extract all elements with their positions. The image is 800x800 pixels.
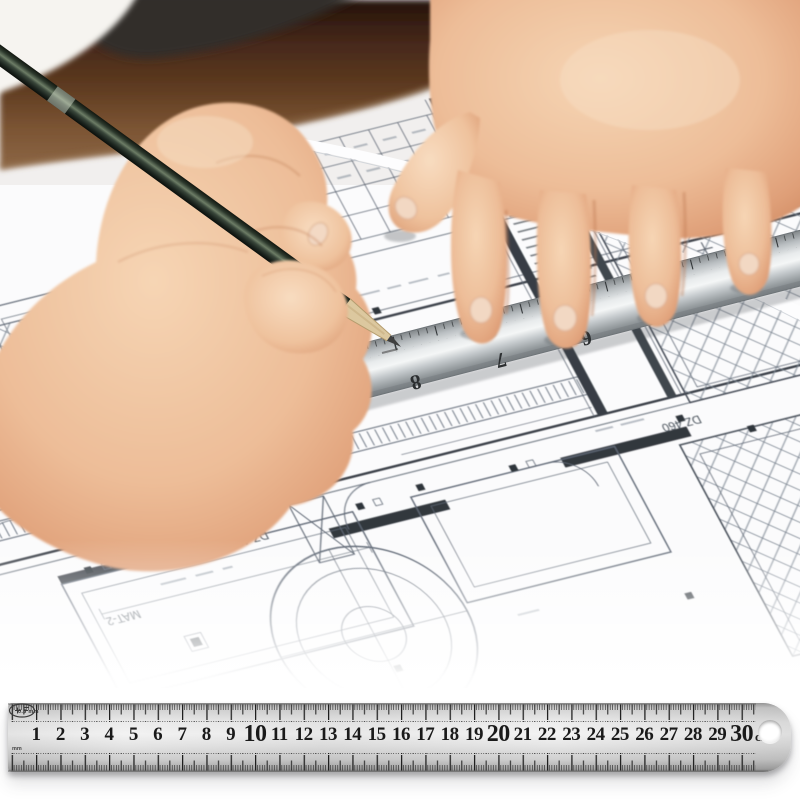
ruler-number: 30 bbox=[730, 721, 753, 748]
ruler-number: 3 bbox=[80, 724, 89, 746]
fingernail bbox=[470, 297, 492, 323]
steel-ruler-product: 1234567891011121314151617181920212223242… bbox=[8, 703, 791, 772]
ruler-number: 18 bbox=[441, 724, 459, 746]
ruler-number: 8 bbox=[202, 724, 211, 746]
ruler-number: 15 bbox=[368, 724, 386, 746]
ruler-mm-label: mm bbox=[12, 746, 22, 752]
ruler-number: 28 bbox=[684, 724, 702, 746]
ruler-number: 10 bbox=[243, 721, 266, 748]
ruler-number: 26 bbox=[635, 724, 653, 746]
ruler-number: 14 bbox=[343, 724, 361, 746]
scene-photo: MAT-2 1290 DZ 480 TF-06 DZ 460 bbox=[0, 0, 800, 700]
ruler-number: 4 bbox=[104, 724, 113, 746]
ruler-number: 19 bbox=[465, 724, 483, 746]
ruler-number: 25 bbox=[611, 724, 629, 746]
ruler-number: 5 bbox=[129, 724, 138, 746]
ruler-number: 1 bbox=[32, 724, 41, 746]
cert-mark-icon bbox=[8, 703, 36, 718]
ruler-number: 12 bbox=[295, 724, 313, 746]
ruler-number: 23 bbox=[562, 724, 580, 746]
ruler-number: 17 bbox=[416, 724, 434, 746]
ruler-hanging-hole bbox=[758, 720, 782, 744]
fingernail bbox=[554, 305, 577, 331]
ruler-number: 7 bbox=[177, 724, 186, 746]
ruler-number: 16 bbox=[392, 724, 410, 746]
ruler-number: 29 bbox=[708, 724, 726, 746]
product-photo-stage: MAT-2 1290 DZ 480 TF-06 DZ 460 bbox=[0, 0, 800, 800]
fingernail bbox=[645, 284, 667, 309]
ruler-number: 20 bbox=[487, 721, 510, 748]
ruler-number: 21 bbox=[514, 724, 532, 746]
ruler-number: 24 bbox=[587, 724, 605, 746]
ruler-scale-numbers: 1234567891011121314151617181920212223242… bbox=[8, 703, 791, 772]
ruler-number: 6 bbox=[153, 724, 162, 746]
ruler-number: 11 bbox=[271, 724, 288, 746]
fingernail bbox=[739, 253, 759, 275]
ruler-number: 13 bbox=[319, 724, 337, 746]
ruler-number: 22 bbox=[538, 724, 556, 746]
ruler-number: 27 bbox=[660, 724, 678, 746]
ruler-number: 2 bbox=[56, 724, 65, 746]
product-ruler-area: 1234567891011121314151617181920212223242… bbox=[0, 688, 800, 800]
ruler-number: 9 bbox=[226, 724, 235, 746]
